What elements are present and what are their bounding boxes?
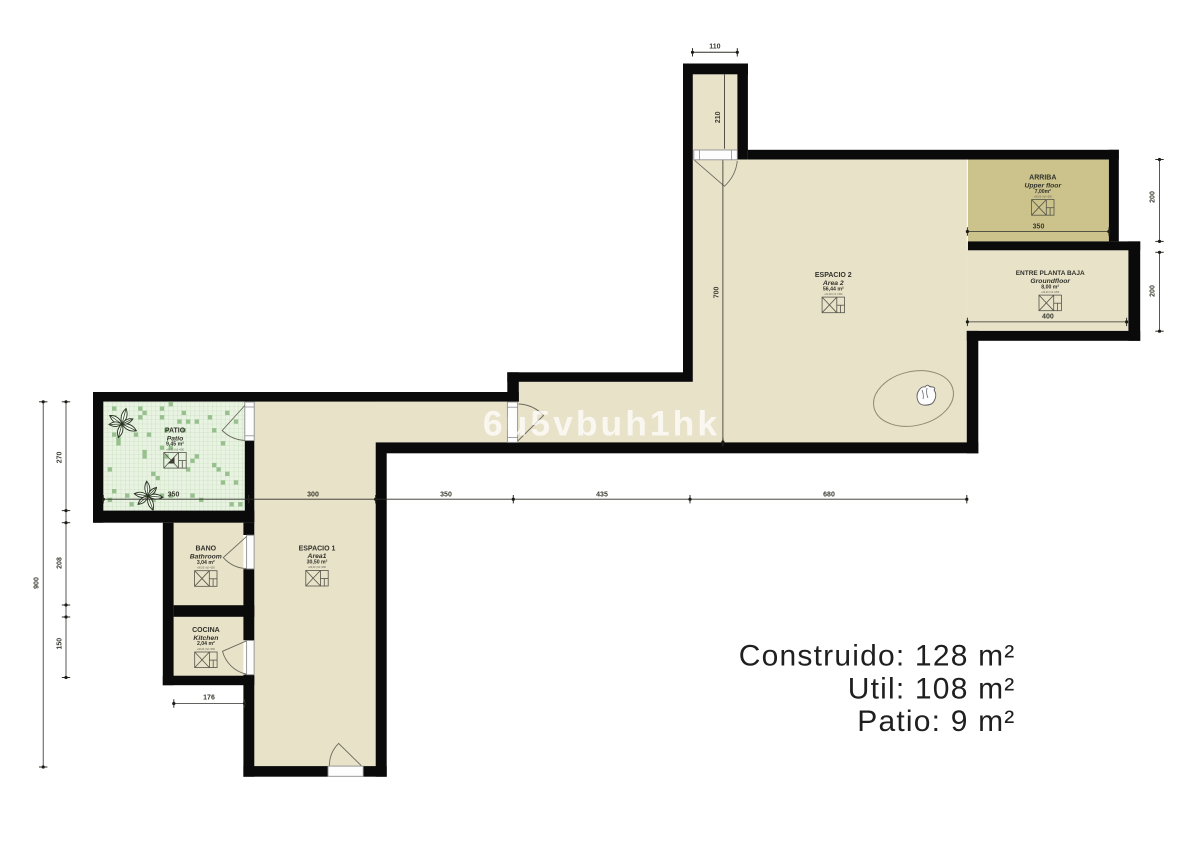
svg-text:Util: 108 m²: Util: 108 m²: [848, 672, 1016, 705]
svg-text:150: 150: [56, 638, 63, 650]
svg-text:+00,00 | h2 =250: +00,00 | h2 =250: [1034, 195, 1053, 198]
svg-text:ESPACIO 2: ESPACIO 2: [815, 272, 852, 279]
svg-text:56,44 m²: 56,44 m²: [823, 286, 844, 292]
svg-text:900: 900: [34, 577, 41, 589]
svg-text:210: 210: [715, 111, 722, 123]
svg-text:+00,00 | h2 =250: +00,00 | h2 =250: [824, 293, 843, 296]
svg-text:+00,00 | h2 =250: +00,00 | h2 =250: [308, 566, 327, 569]
svg-text:COCINA: COCINA: [192, 627, 220, 634]
svg-text:435: 435: [596, 491, 608, 498]
svg-text:ESPACIO 1: ESPACIO 1: [299, 545, 336, 552]
svg-text:7,00m²: 7,00m²: [1035, 189, 1052, 195]
svg-text:Construido: 128 m²: Construido: 128 m²: [739, 640, 1016, 673]
svg-text:Patio: 9 m²: Patio: 9 m²: [857, 705, 1015, 738]
svg-text:8,00 m²: 8,00 m²: [1041, 284, 1059, 290]
svg-text:200: 200: [1150, 191, 1157, 203]
svg-text:3,04 m²: 3,04 m²: [197, 560, 215, 566]
svg-text:300: 300: [307, 491, 319, 498]
svg-text:350: 350: [440, 491, 452, 498]
svg-text:BANO: BANO: [195, 546, 216, 553]
svg-text:6u5vbuh1hk: 6u5vbuh1hk: [483, 403, 720, 443]
svg-text:PATIO: PATIO: [165, 428, 186, 435]
svg-text:2,04 m²: 2,04 m²: [197, 641, 215, 647]
svg-text:9,45 m²: 9,45 m²: [166, 442, 184, 448]
svg-text:30,50 m²: 30,50 m²: [307, 560, 328, 566]
svg-text:+00,00 | h2 =250: +00,00 | h2 =250: [197, 567, 216, 570]
svg-text:176: 176: [203, 695, 215, 702]
svg-text:110: 110: [709, 44, 720, 51]
svg-text:350: 350: [168, 491, 180, 498]
svg-text:200: 200: [1150, 285, 1157, 297]
svg-text:208: 208: [56, 557, 63, 569]
svg-text:+00,00 | h2 =250: +00,00 | h2 =250: [197, 648, 216, 651]
svg-text:700: 700: [714, 286, 721, 298]
svg-text:+00,00 | h2 =250: +00,00 | h2 =250: [166, 448, 185, 451]
svg-text:680: 680: [823, 491, 835, 498]
svg-text:270: 270: [56, 451, 63, 463]
svg-text:+00,00 | h2 =250: +00,00 | h2 =250: [1041, 291, 1060, 294]
svg-text:350: 350: [1033, 223, 1045, 230]
svg-text:ENTRE PLANTA BAJA: ENTRE PLANTA BAJA: [1016, 270, 1085, 277]
svg-text:400: 400: [1042, 314, 1054, 321]
svg-text:ARRIBA: ARRIBA: [1029, 175, 1056, 182]
